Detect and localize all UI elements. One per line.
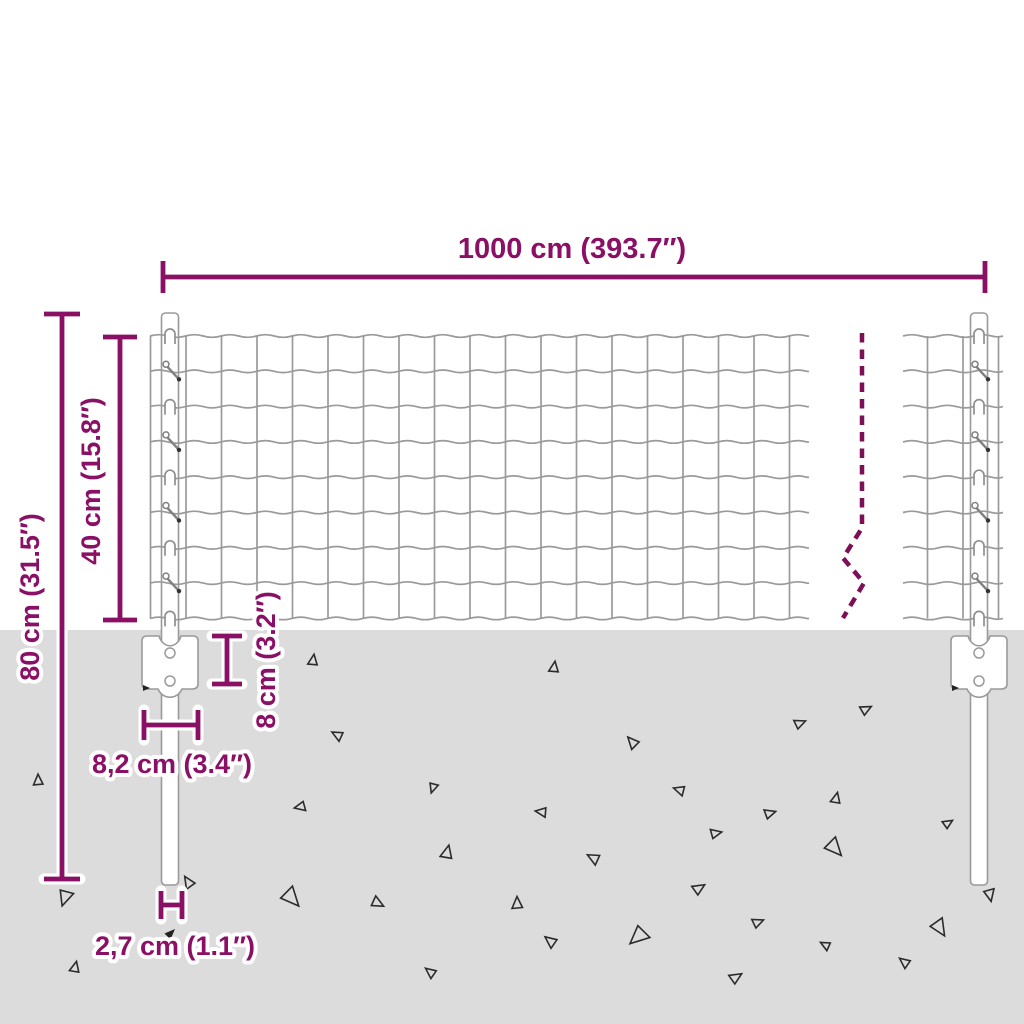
right-plate-hole	[974, 676, 984, 686]
label-post-height: 80 cm (31.5″)	[15, 513, 45, 681]
clip-tip-icon	[986, 589, 990, 593]
wire-hook-icon	[974, 541, 984, 556]
wire-hook-icon	[165, 611, 175, 626]
clip-tip-icon	[177, 448, 181, 452]
clip-tip-icon	[177, 377, 181, 381]
label-total-width: 1000 cm (393.7″)	[458, 233, 686, 265]
fence-dimension-diagram: 1000 cm (393.7″) 80 cm (31.5″) 40 cm (15…	[0, 0, 1024, 1024]
left-plate-hole	[165, 648, 175, 658]
wire-hook-icon	[165, 329, 175, 344]
wire-hook-icon	[974, 329, 984, 344]
wire-hook-icon	[165, 541, 175, 556]
left-anchor-plate	[142, 636, 198, 697]
clip-tip-icon	[986, 448, 990, 452]
label-anchor-depth: 8 cm (3.2″)	[251, 591, 281, 729]
clip-tip-icon	[177, 589, 181, 593]
right-anchor-plate	[951, 636, 1007, 697]
clip-tip-icon	[177, 518, 181, 522]
right-plate-hole	[974, 648, 984, 658]
wire-hook-icon	[974, 611, 984, 626]
fence-dimension-svg: 1000 cm (393.7″) 80 cm (31.5″) 40 cm (15…	[0, 0, 1024, 1024]
wire-hook-icon	[974, 400, 984, 415]
left-plate-hole	[165, 676, 175, 686]
wire-hook-icon	[974, 470, 984, 485]
label-post-thickness: 2,7 cm (1.1″)	[95, 931, 255, 961]
clip-tip-icon	[986, 377, 990, 381]
label-mesh-height: 40 cm (15.8″)	[76, 397, 106, 565]
wire-hook-icon	[165, 470, 175, 485]
label-anchor-width: 8,2 cm (3.4″)	[92, 749, 252, 779]
wire-hook-icon	[165, 400, 175, 415]
clip-tip-icon	[986, 518, 990, 522]
